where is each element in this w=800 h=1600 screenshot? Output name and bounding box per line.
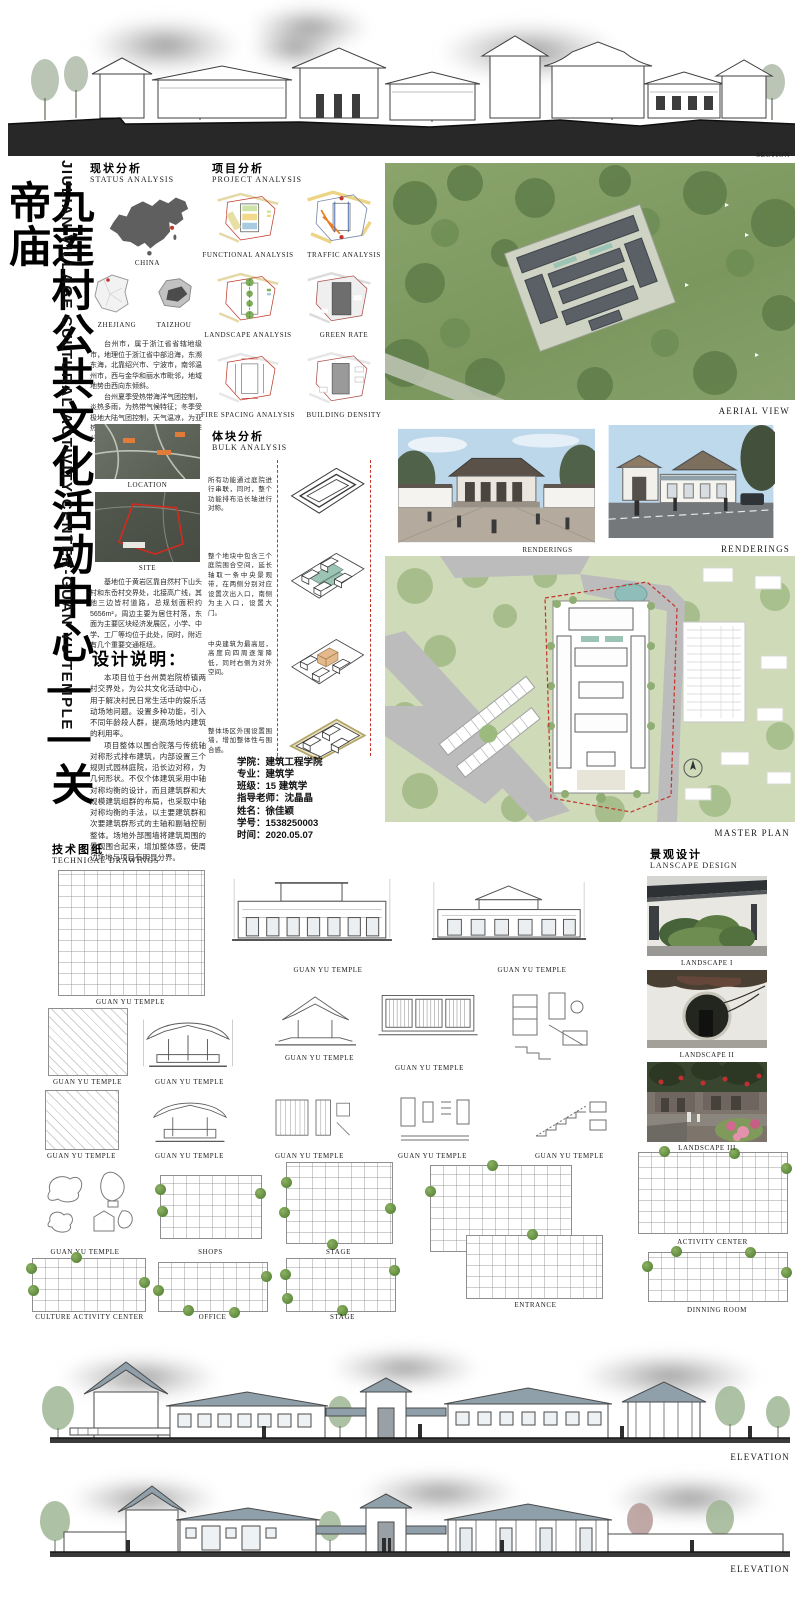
section-drawing (0, 8, 800, 158)
project-info: 学院：建筑工程学院 专业：建筑学 班级：15 建筑学 指导老师：沈晶晶 姓名：徐… (237, 757, 323, 842)
traffic-analysis-diagram (306, 183, 372, 249)
tech-caption: GUAN YU TEMPLE (522, 1152, 617, 1160)
bulk-heading-en: BULK ANALYSIS (212, 443, 287, 452)
tech-drawing-elevation-2 (428, 868, 590, 960)
green-rate-caption: GREEN RATE (296, 331, 392, 339)
landscape-caption-2: LANDSCAPE II (647, 1051, 767, 1059)
aerial-view-image (385, 163, 795, 400)
tech-drawing-stair-detail (528, 1092, 613, 1148)
location-caption: LOCATION (95, 481, 200, 489)
tech-caption: GUAN YU TEMPLE (248, 966, 408, 974)
info-school: 学院：建筑工程学院 (237, 757, 323, 769)
aerial-caption: AERIAL VIEW (660, 406, 790, 416)
tech-drawing-window-wall (373, 988, 483, 1046)
tech-caption: OFFICE (165, 1313, 260, 1321)
tech-drawing-dinning-room-plan (648, 1252, 788, 1302)
tech-drawing-entrance-plan (466, 1235, 603, 1299)
bulk-axon-3 (282, 631, 370, 689)
site-caption: SITE (95, 564, 200, 572)
landscape-photo-2 (647, 970, 767, 1048)
tech-drawing-elevation-1 (228, 868, 396, 960)
info-major: 专业：建筑学 (237, 769, 323, 781)
tech-drawing-detail-1 (505, 985, 595, 1065)
tech-drawing-pavilion-section (268, 988, 363, 1052)
tech-drawing-activity-center-plan (638, 1152, 788, 1234)
bulk-guide-line-left (277, 460, 278, 756)
zhejiang-map (92, 272, 142, 318)
tech-drawing-detail-2 (395, 1092, 475, 1148)
functional-analysis-caption: FUNCTIONAL ANALYSIS (200, 251, 296, 259)
site-satellite-image (95, 492, 200, 562)
rendering-right-caption: RENDERINGS (655, 544, 790, 554)
fire-spacing-caption: FIRE SPACING ANALYSIS (200, 411, 296, 419)
tech-caption: CULTURE ACTIVITY CENTER (22, 1313, 157, 1321)
tech-caption: DINNING ROOM (662, 1306, 772, 1314)
tech-caption: STAGE (286, 1248, 391, 1256)
bulk-note-1: 所有功能通过庭院进行串联，同时，整个功能排布沿长轴进行对称。 (208, 476, 272, 514)
status-heading-zh: 现状分析 (90, 160, 142, 176)
landscape-photo-3 (647, 1062, 767, 1142)
design-note-heading: 设计说明： (92, 645, 187, 670)
tech-caption: GUAN YU TEMPLE (40, 1078, 135, 1086)
landscape-caption-3: LANDSCAPE III (647, 1144, 767, 1152)
bulk-note-4: 整体场区外围设置围墙，增加整体性与围合感。 (208, 727, 272, 755)
info-advisor: 指导老师：沈晶晶 (237, 793, 323, 805)
tech-heading-en: TECHNICAL DRAWINGS (52, 856, 160, 865)
taizhou-map (153, 274, 195, 314)
design-note-body: 本项目位于台州黄岩院桥镇两村交界处，为公共文化活动中心，用于解决村民日常生活中的… (90, 672, 206, 863)
tech-caption: GUAN YU TEMPLE (58, 998, 203, 1006)
tech-caption: SHOPS (158, 1248, 263, 1256)
tech-caption: GUAN YU TEMPLE (142, 1152, 237, 1160)
tech-drawing-shops-plan (160, 1175, 262, 1239)
china-map (100, 190, 195, 258)
tech-drawing-plan-large (58, 870, 205, 996)
landscape-heading-en: LANSCAPE DESIGN (650, 861, 738, 870)
project-heading-zh: 项目分析 (212, 160, 264, 176)
tech-drawing-stage-plan (286, 1162, 393, 1244)
functional-analysis-diagram (216, 186, 280, 248)
landscape-analysis-diagram (216, 266, 280, 328)
info-date: 时间：2020.05.07 (237, 830, 323, 842)
tech-caption: STAGE (295, 1313, 390, 1321)
building-density-caption: BUILDING DENSITY (296, 411, 392, 419)
tech-drawing-pavilion-1 (138, 1006, 238, 1076)
landscape-heading-zh: 景观设计 (650, 846, 702, 862)
landscape-analysis-caption: LANDSCAPE ANALYSIS (200, 331, 296, 339)
bulk-heading-zh: 体块分析 (212, 428, 264, 444)
section-caption: SECTION (700, 151, 790, 159)
elevation-drawing-2 (30, 1476, 795, 1561)
china-caption: CHINA (100, 259, 195, 267)
bulk-guide-line-right (370, 460, 371, 756)
green-rate-diagram (306, 266, 372, 328)
taizhou-caption: TAIZHOU (148, 321, 200, 329)
tech-caption: GUAN YU TEMPLE (385, 1152, 480, 1160)
traffic-analysis-caption: TRAFFIC ANALYSIS (296, 251, 392, 259)
master-plan-caption: MASTER PLAN (655, 828, 790, 838)
presentation-board: SECTION 九莲村公共文化活动中心——关帝庙 JIULIAN VILLAGE… (0, 0, 800, 1600)
tech-caption: GUAN YU TEMPLE (382, 1064, 477, 1072)
rendering-left-caption: RENDERINGS (500, 546, 595, 554)
bulk-note-2: 整个地块中包含三个庭院围合空间，延长轴取一条中央景观带，在两侧分别对应设置次出入… (208, 552, 272, 618)
zhejiang-caption: ZHEJIANG (88, 321, 146, 329)
building-density-diagram (306, 346, 372, 408)
tech-caption: GUAN YU TEMPLE (272, 1054, 367, 1062)
elevation-caption-1: ELEVATION (660, 1452, 790, 1462)
tech-caption: GUAN YU TEMPLE (34, 1152, 129, 1160)
main-title-chinese: 九莲村公共文化活动中心——关帝庙 (4, 180, 90, 820)
tech-drawing-office-plan (158, 1262, 268, 1312)
fire-spacing-diagram (216, 346, 280, 408)
tech-caption: ENTRANCE (488, 1301, 583, 1309)
info-name: 姓名：徐佳颖 (237, 806, 323, 818)
bulk-axon-2 (282, 543, 370, 605)
tech-drawing-culture-center-plan (32, 1258, 146, 1312)
bulk-axon-1 (282, 458, 370, 520)
rendering-right-image (607, 425, 775, 538)
project-heading-en: PROJECT ANALYSIS (212, 175, 302, 184)
tech-drawing-roof-plan-2 (45, 1090, 119, 1150)
tech-drawing-stage-plan-2 (286, 1258, 396, 1312)
tech-caption: ACTIVITY CENTER (640, 1238, 785, 1246)
status-paragraph-2: 基地位于黄岩区靠自然村下山头村和东岙村交界处，北接高广线，其他三边皆村道路，总规… (90, 578, 202, 652)
info-student-id: 学号：1538250003 (237, 818, 323, 830)
landscape-photo-1 (647, 876, 767, 956)
info-class: 班级：15 建筑学 (237, 781, 323, 793)
landscape-caption-1: LANDSCAPE I (647, 959, 767, 967)
elevation-caption-2: ELEVATION (660, 1564, 790, 1574)
tech-caption: GUAN YU TEMPLE (452, 966, 612, 974)
elevation-drawing-1 (30, 1350, 795, 1450)
location-satellite-image (95, 424, 200, 479)
tech-drawing-sketches (38, 1165, 143, 1247)
tech-heading-zh: 技术图纸 (52, 841, 104, 857)
master-plan-image (385, 556, 795, 822)
status-heading-en: STATUS ANALYSIS (90, 175, 174, 184)
main-title-english: JIULIAN VILLAGE CULTURAL ACTIVITY CENTER… (58, 160, 75, 830)
bulk-axon-4 (282, 716, 370, 762)
tech-caption: GUAN YU TEMPLE (30, 1248, 140, 1256)
tech-caption: GUAN YU TEMPLE (262, 1152, 357, 1160)
tech-drawing-roof-plan (48, 1008, 128, 1076)
tech-drawing-window-panels (268, 1092, 356, 1148)
tech-drawing-pavilion-2 (140, 1088, 240, 1150)
rendering-left-image (398, 428, 595, 543)
tech-caption: GUAN YU TEMPLE (142, 1078, 237, 1086)
bulk-note-3: 中央建筑为最高层，高度向四周逐渐降低，同时右侧为对外空间。 (208, 640, 272, 678)
